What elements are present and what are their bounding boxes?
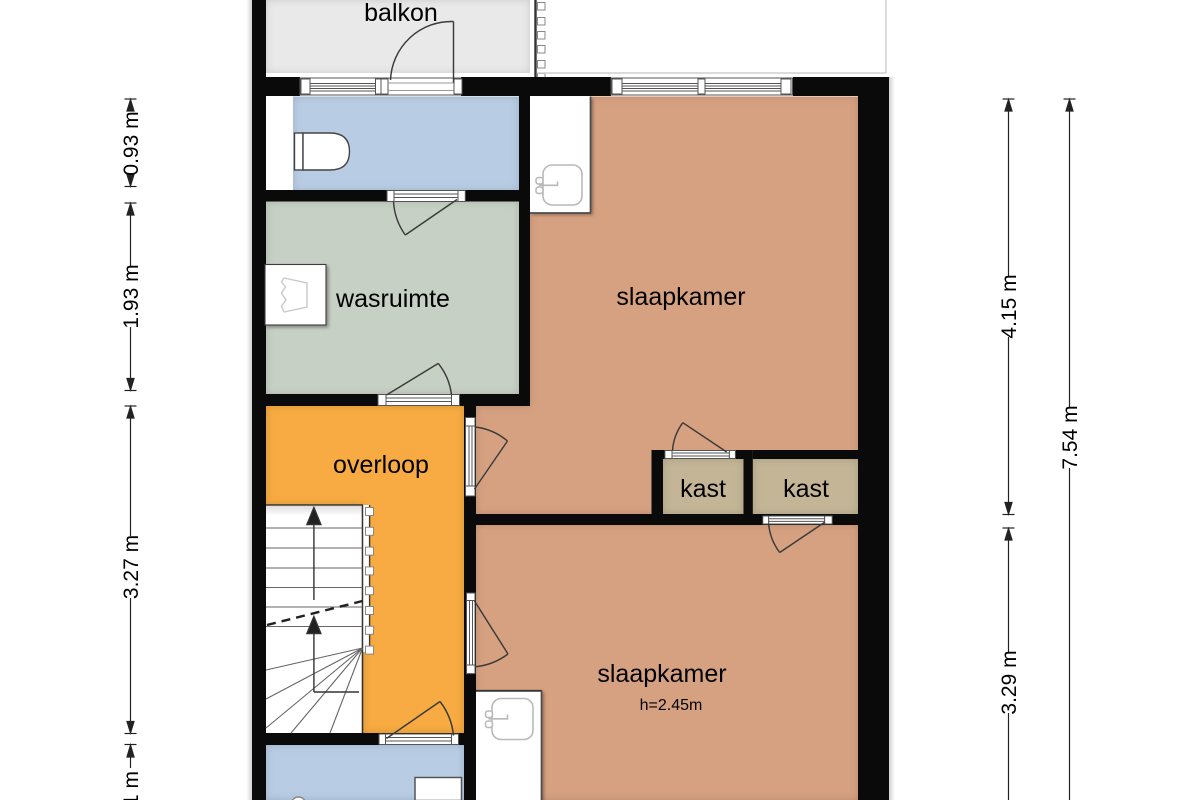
svg-text:overloop: overloop	[333, 451, 429, 479]
svg-text:balkon: balkon	[364, 0, 438, 27]
svg-text:slaapkamer: slaapkamer	[597, 660, 726, 688]
svg-text:3.27 m: 3.27 m	[120, 535, 143, 599]
svg-text:slaapkamer: slaapkamer	[616, 283, 745, 311]
svg-text:1 m: 1 m	[120, 771, 143, 800]
svg-text:1.93 m: 1.93 m	[120, 264, 143, 328]
svg-text:kast: kast	[680, 475, 726, 503]
svg-text:4.15 m: 4.15 m	[998, 274, 1021, 338]
svg-text:wasruimte: wasruimte	[335, 285, 450, 313]
svg-text:7.54 m: 7.54 m	[1059, 405, 1082, 469]
svg-text:h=2.45m: h=2.45m	[640, 697, 703, 714]
svg-text:0.93 m: 0.93 m	[120, 111, 143, 175]
svg-text:kast: kast	[783, 475, 829, 503]
svg-text:3.29 m: 3.29 m	[998, 650, 1021, 714]
